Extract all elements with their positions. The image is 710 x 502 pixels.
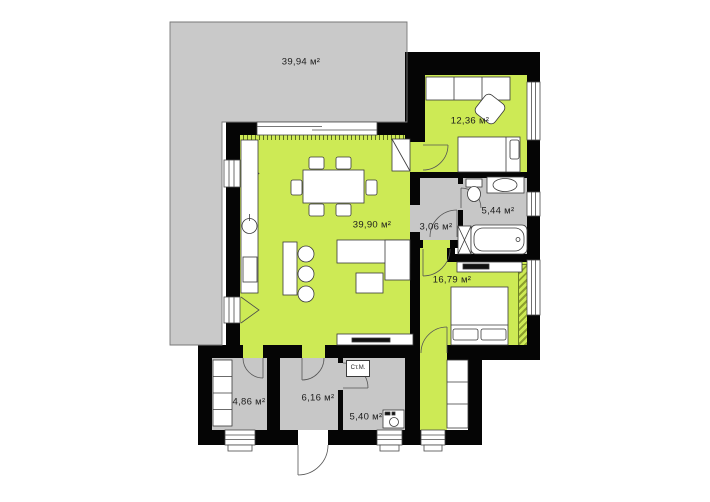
room-label-utility: 5,40 м² (350, 412, 383, 423)
closet-shelves (447, 360, 468, 428)
dining-chair (309, 204, 324, 216)
room-label-entry: 6,16 м² (302, 393, 335, 404)
dresser (457, 262, 522, 272)
plan-vector-overlay (0, 0, 710, 502)
shower-box (458, 226, 471, 254)
dining-chair (366, 180, 377, 195)
window-bottom-2 (377, 430, 402, 451)
tv (352, 338, 390, 342)
room-label-pantry: 4,86 м² (233, 397, 266, 408)
tv-console (337, 334, 413, 345)
window-right-2 (527, 192, 540, 216)
dining-chair (291, 180, 302, 195)
bar-stool (298, 286, 314, 302)
door-arc-pantry (243, 358, 263, 378)
room-label-bathroom: 5,44 м² (482, 206, 515, 217)
toilet-icon (466, 179, 482, 202)
room-label-terrace: 39,94 м² (282, 57, 321, 68)
door-arc-entrance (298, 445, 328, 475)
bar-stool (298, 246, 314, 262)
boiler-appliance (383, 410, 404, 428)
pillow (481, 329, 506, 340)
bathtub (471, 225, 527, 254)
bed-double (451, 287, 508, 345)
dining-chair (336, 204, 351, 216)
wardrobe-living (392, 139, 410, 171)
bathroom-sink-icon (487, 177, 524, 193)
door-arc-bedroom1 (423, 249, 450, 276)
room-label-bedroom2: 12,36 м² (451, 116, 490, 127)
window-left-2 (224, 297, 259, 323)
window-bottom-3 (421, 430, 445, 451)
window-bottom-1 (225, 430, 255, 451)
room-label-bedroom1: 16,79 м² (433, 275, 472, 286)
washing-machine-label: Ст.М. (351, 365, 366, 371)
pantry-shelves (213, 360, 232, 426)
coffee-table (356, 273, 383, 293)
dining-chair (336, 157, 351, 169)
bar-island (283, 242, 314, 302)
pillow (453, 329, 478, 340)
dining-chair (309, 157, 324, 169)
kitchen-counter (241, 140, 258, 293)
pillow (510, 140, 519, 159)
bar-stool (298, 266, 314, 282)
door-arc-entry (302, 358, 324, 380)
bed-single (458, 137, 520, 172)
window-right-1 (527, 82, 540, 140)
door-arc-bedroom2 (423, 145, 448, 170)
window-terrace-slider (257, 122, 377, 135)
door-arc-corridor (421, 327, 447, 353)
tv (463, 264, 489, 269)
window-right-3 (527, 260, 540, 315)
cooktop-icon (243, 257, 257, 282)
room-label-hall: 3,06 м² (420, 222, 453, 233)
entrance-opening (298, 430, 328, 445)
wardrobe-bedroom2 (426, 77, 510, 100)
room-label-living: 39,90 м² (353, 220, 392, 231)
dining-table (291, 157, 377, 216)
floor-plan: 39,94 м² 12,36 м² 39,90 м² 3,06 м² 5,44 … (0, 0, 710, 502)
